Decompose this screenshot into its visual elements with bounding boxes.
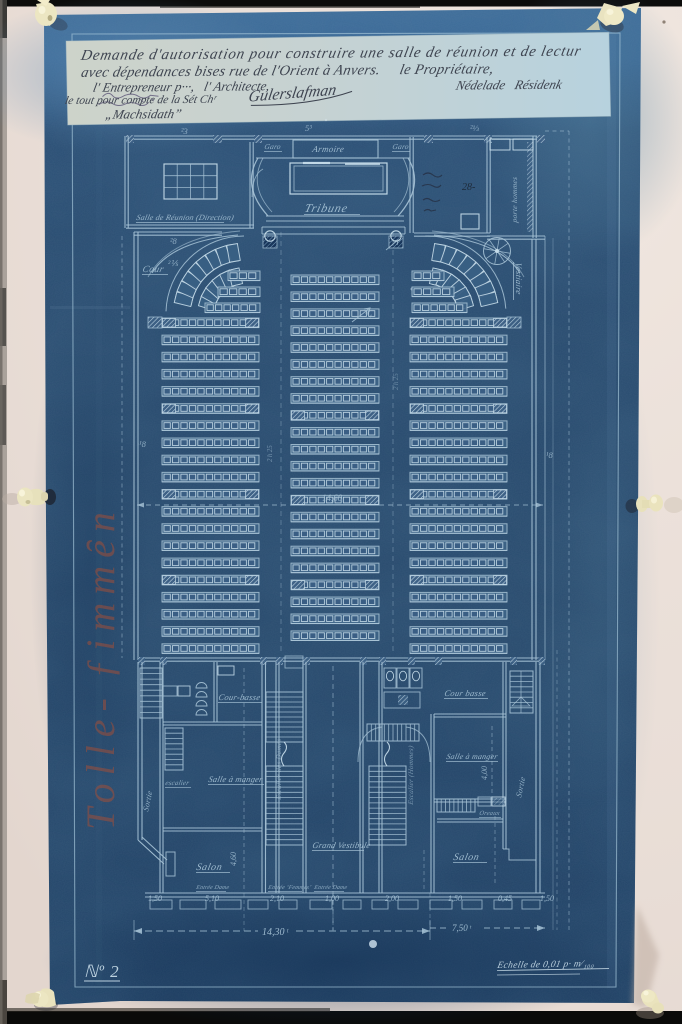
svg-text:28-: 28- [462,182,475,193]
svg-text:²3: ²3 [181,126,188,136]
svg-text:5³: 5³ [305,123,312,133]
svg-text:Salle à manger: Salle à manger [208,774,265,784]
svg-text:le tout pour compte de la Sét: le tout pour compte de la Sét Chʳ [64,93,219,107]
svg-text:¹8: ¹8 [546,450,554,460]
svg-text:Cour basse: Cour basse [444,688,488,698]
svg-text:ℕº 2: ℕº 2 [84,962,120,981]
svg-text:Entrée ‘Femmes’: Entrée ‘Femmes’ [267,884,312,891]
svg-text:Armoire: Armoire [311,144,345,154]
svg-text:Cour-basse: Cour-basse [218,692,262,702]
svg-text:Grand Vestibule: Grand Vestibule [312,840,372,850]
svg-text:Entrée Dame: Entrée Dame [195,885,230,891]
svg-text:²⅕: ²⅕ [168,259,178,268]
svg-text:Vestiaire: Vestiaire [514,262,524,296]
svg-text:2 h 25: 2 h 25 [266,445,274,462]
svg-text:2,10: 2,10 [270,894,284,903]
svg-text:Garo: Garo [264,142,282,151]
svg-text:Escalier (Hommes): Escalier (Hommes) [407,744,415,806]
svg-text:4,00: 4,00 [480,766,489,780]
svg-text:1,50: 1,50 [540,894,554,903]
svg-text:2,00: 2,00 [385,894,399,903]
svg-text:porte hommes: porte hommes [510,176,519,226]
svg-text:5,10: 5,10 [205,894,219,903]
svg-text:14,30 ᵗ: 14,30 ᵗ [262,927,290,938]
svg-text:4,60: 4,60 [229,852,238,866]
svg-text:1,50: 1,50 [148,894,162,903]
svg-text:escalier: escalier [165,779,190,787]
svg-text:·¹8: ·¹8 [137,439,147,449]
svg-text:Garo: Garo [392,142,410,151]
svg-text:²8: ²8 [170,236,178,246]
svg-text:1,00: 1,00 [325,894,339,903]
svg-text:Tolle- ƒimmȇn: Tolle- ƒimmȇn [78,504,123,830]
svg-text:Tribune: Tribune [303,201,349,215]
svg-text:1,50: 1,50 [448,894,462,903]
svg-text:²⅓: ²⅓ [470,123,480,133]
svg-text:14,60: 14,60 [322,493,343,503]
svg-text:„Machsidath”: „Machsidath” [104,106,183,122]
svg-text:0,45: 0,45 [498,894,512,903]
svg-text:Entrée Dame: Entrée Dame [313,885,348,891]
svg-text:Salle à manger: Salle à manger [446,752,500,761]
svg-text:Salon: Salon [452,852,480,863]
svg-text:Salon: Salon [195,862,223,873]
svg-text:Escalier des Dames: Escalier des Dames [275,738,283,801]
svg-text:7,50 ᵗ: 7,50 ᵗ [452,923,472,933]
svg-text:Nédelade Résidenk: Nédelade Résidenk [454,77,565,93]
svg-text:Oreaux: Oreaux [479,810,501,817]
svg-text:Salle de Réunion (Direction): Salle de Réunion (Direction) [136,213,235,222]
